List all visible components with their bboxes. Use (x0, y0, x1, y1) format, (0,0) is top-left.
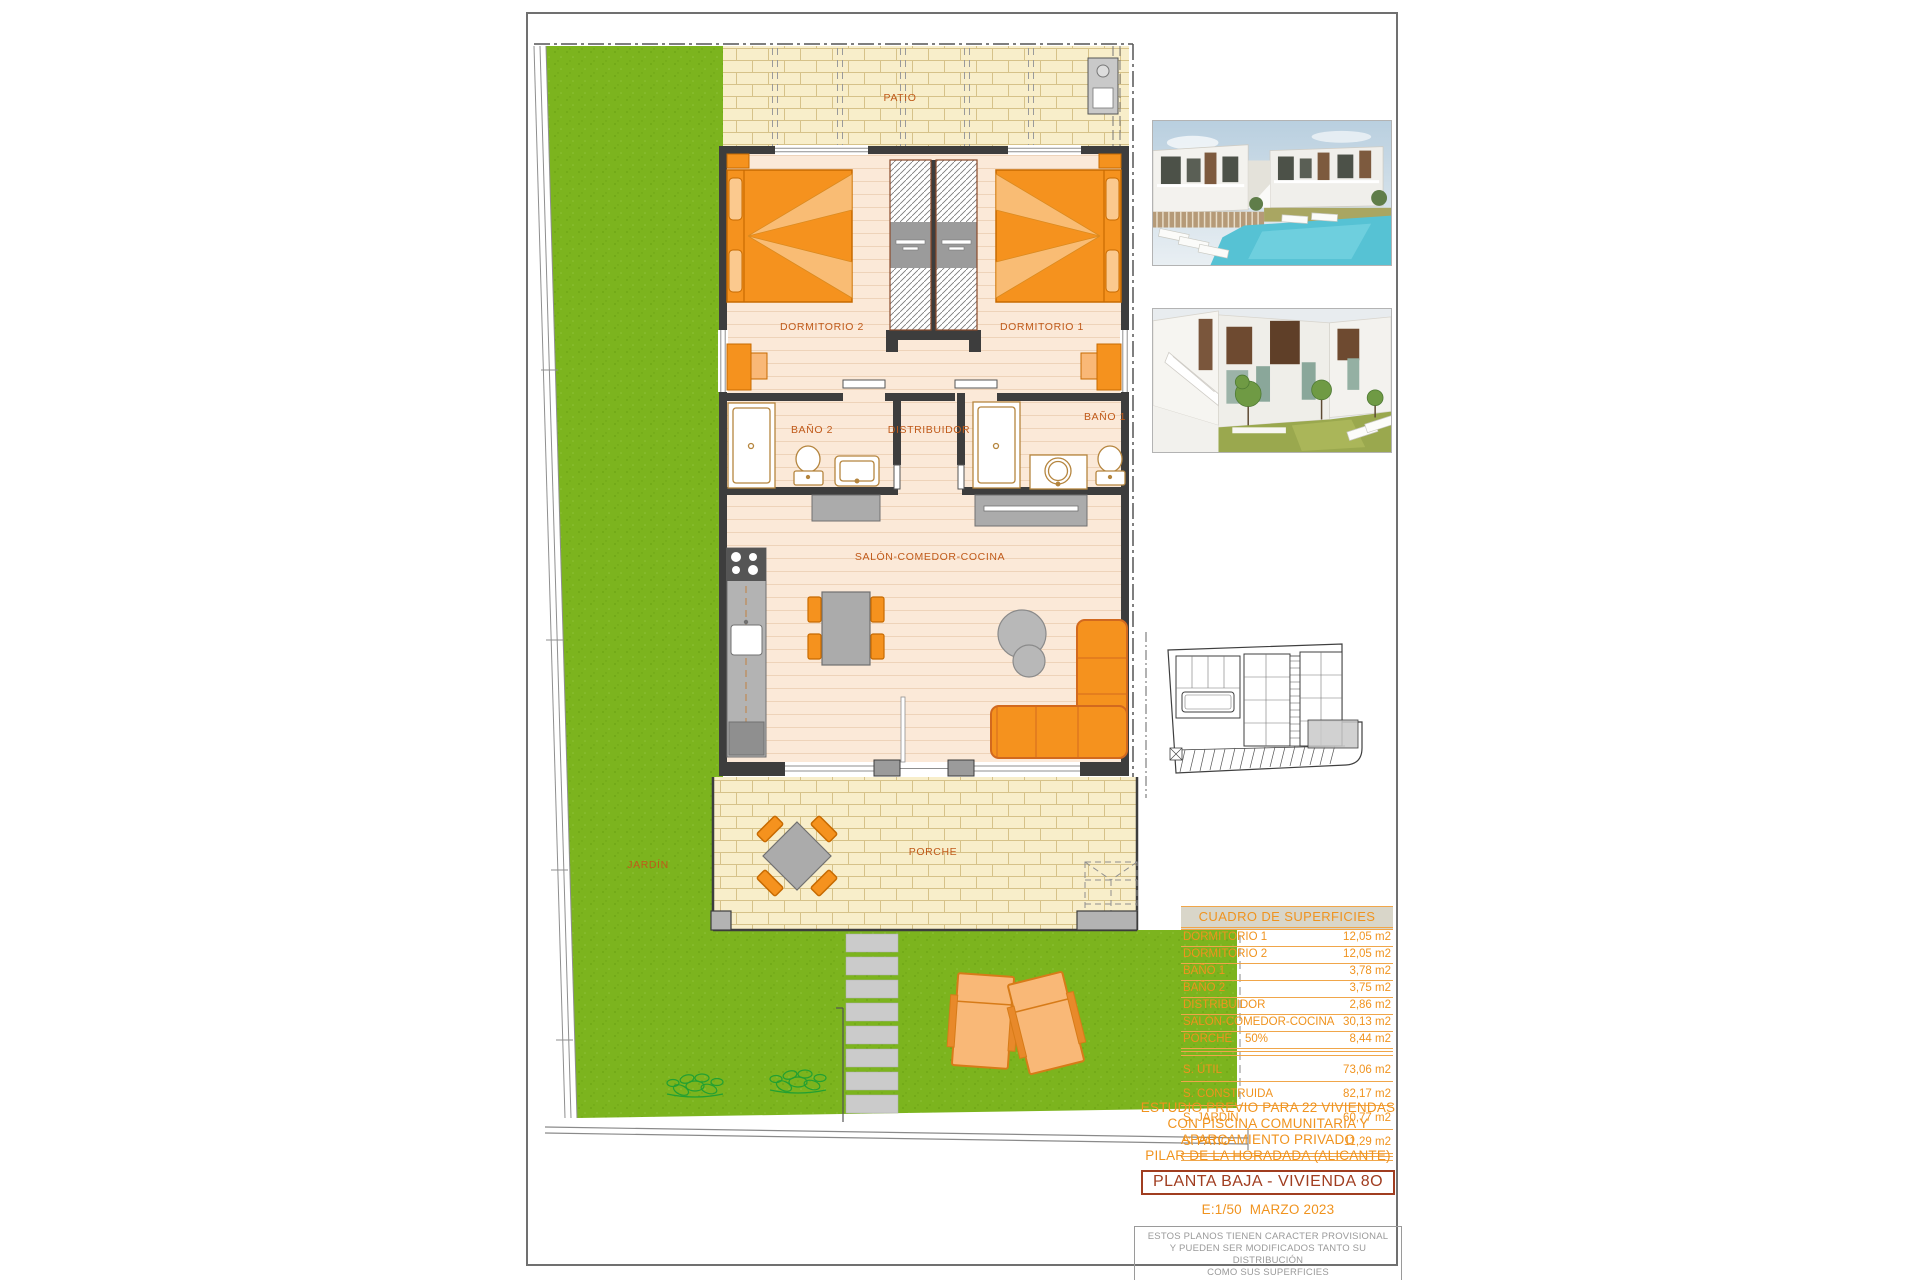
patio-label: PATIO (884, 92, 917, 104)
patio-area (723, 46, 1129, 146)
table-row: PORCHE 50%8,44 m2 (1181, 1032, 1393, 1049)
table-row: DISTRIBUIDOR2,86 m2 (1181, 998, 1393, 1015)
dormitorio1-label: DORMITORIO 1 (1000, 321, 1084, 333)
coffee-table (1013, 645, 1045, 677)
plan-title: PLANTA BAJA - VIVIENDA 8O (1141, 1170, 1395, 1195)
table-divider (1181, 1051, 1393, 1056)
project-line: ESTUDIO PREVIO PARA 22 VIVIENDAS (1118, 1100, 1418, 1116)
site-plan-highlighted-unit (1308, 720, 1358, 748)
project-line: APARCAMIENTO PRIVADO (1118, 1132, 1418, 1148)
table-row: BAÑO 23,75 m2 (1181, 981, 1393, 998)
table-row: BAÑO 13,78 m2 (1181, 964, 1393, 981)
render-photo-pool (1152, 120, 1392, 266)
jardin-label: JARDÍN (627, 858, 669, 871)
scale-and-date: E:1/50 MARZO 2023 (1118, 1202, 1418, 1218)
bano1-label: BAÑO 1 (1084, 410, 1126, 423)
sideboard (975, 495, 1087, 526)
project-line: PILAR DE LA HORADADA (ALICANTE) (1118, 1148, 1418, 1164)
title-block: ESTUDIO PREVIO PARA 22 VIVIENDAS CON PIS… (1118, 1100, 1418, 1280)
table-row: DORMITORIO 112,05 m2 (1181, 930, 1393, 947)
surfaces-room-rows: DORMITORIO 112,05 m2 DORMITORIO 212,05 m… (1181, 930, 1393, 1049)
render-photo-gardens (1152, 308, 1392, 453)
distribuidor-label: DISTRIBUIDOR (888, 424, 970, 436)
table-row: SALÓN-COMEDOR-COCINA30,13 m2 (1181, 1015, 1393, 1032)
site-plan-key (1140, 630, 1396, 800)
table-row: DORMITORIO 212,05 m2 (1181, 947, 1393, 964)
project-line: CON PISCINA COMUNITARIA Y (1118, 1116, 1418, 1132)
salon-label: SALÓN-COMEDOR-COCINA (855, 550, 1005, 563)
disclaimer-box: ESTOS PLANOS TIENEN CARACTER PROVISIONAL… (1134, 1226, 1402, 1280)
dormitorio2-label: DORMITORIO 2 (780, 321, 864, 333)
surfaces-table-title: CUADRO DE SUPERFICIES (1181, 906, 1393, 930)
vanity-unit (812, 495, 880, 521)
bano2-label: BAÑO 2 (791, 423, 833, 436)
table-row: S. ÚTIL73,06 m2 (1181, 1058, 1393, 1082)
kitchen (727, 548, 766, 757)
water-heater (1088, 58, 1118, 114)
floorplan-drawing: PATIO JARDÍN PORCHE DORMITORIO 2 DORMITO… (0, 0, 1920, 1280)
porche-label: PORCHE (909, 846, 958, 858)
